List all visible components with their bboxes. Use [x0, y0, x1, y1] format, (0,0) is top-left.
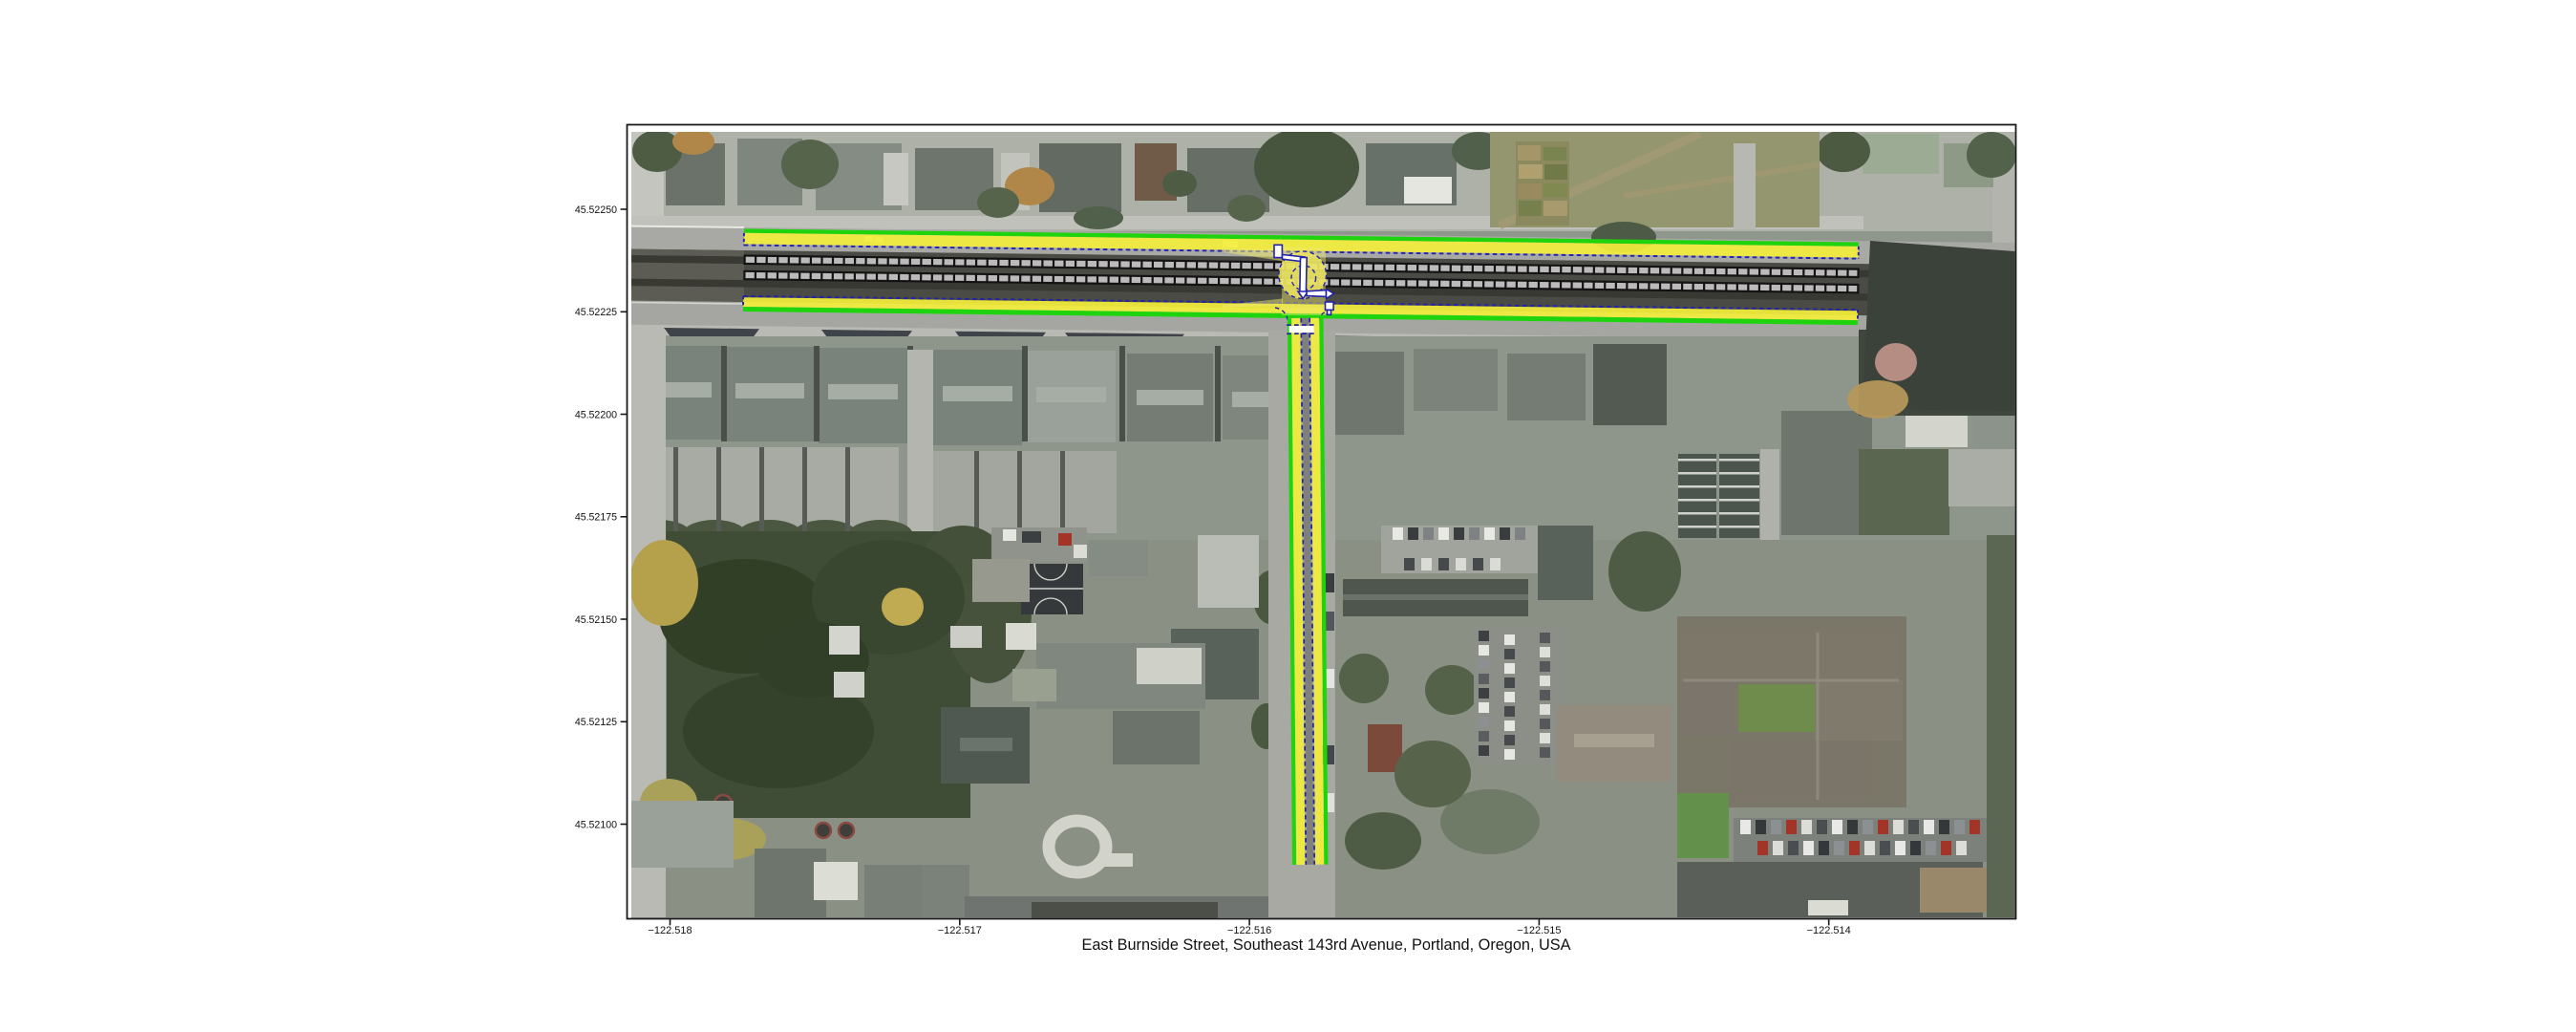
svg-text:−122.516: −122.516: [1227, 925, 1271, 936]
svg-text:−122.515: −122.515: [1517, 925, 1561, 936]
svg-text:45.52250: 45.52250: [575, 204, 617, 216]
svg-text:−122.518: −122.518: [648, 925, 692, 936]
svg-text:45.52125: 45.52125: [575, 717, 617, 728]
svg-text:−122.517: −122.517: [938, 925, 982, 936]
svg-text:45.52175: 45.52175: [575, 512, 617, 524]
svg-text:−122.514: −122.514: [1807, 925, 1851, 936]
svg-text:45.52100: 45.52100: [575, 819, 617, 830]
svg-text:45.52150: 45.52150: [575, 614, 617, 626]
svg-text:45.52200: 45.52200: [575, 409, 617, 420]
svg-text:East Burnside Street, Southeas: East Burnside Street, Southeast 143rd Av…: [1082, 936, 1571, 954]
svg-text:45.52225: 45.52225: [575, 307, 617, 318]
